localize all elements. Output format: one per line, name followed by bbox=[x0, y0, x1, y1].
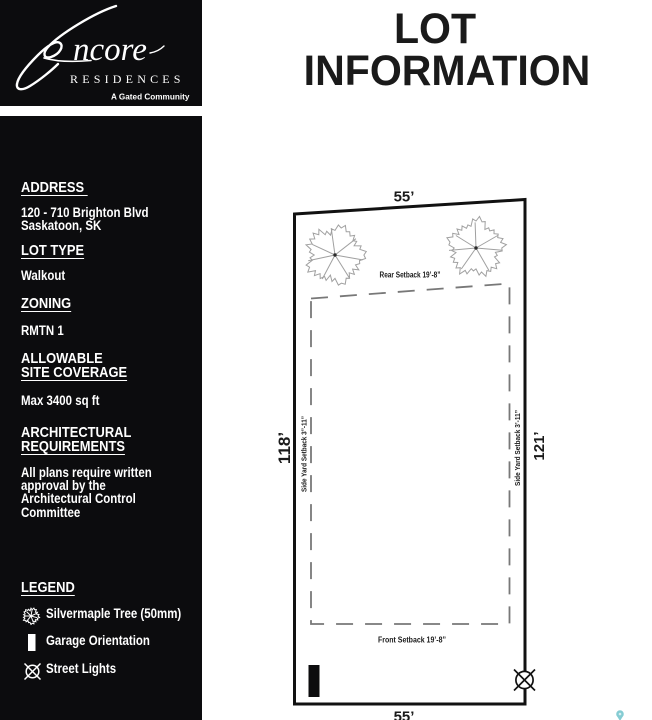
svg-text:Side Yard Setback 3’-11”: Side Yard Setback 3’-11” bbox=[513, 410, 522, 486]
svg-text:55’: 55’ bbox=[394, 709, 415, 720]
svg-text:118’: 118’ bbox=[275, 432, 294, 464]
svg-text:55’: 55’ bbox=[394, 189, 415, 206]
svg-text:Rear Setback 19’-8”: Rear Setback 19’-8” bbox=[380, 271, 441, 280]
svg-text:121’: 121’ bbox=[531, 431, 548, 460]
svg-text:Side Yard Setback 3”-11”: Side Yard Setback 3”-11” bbox=[300, 416, 309, 492]
svg-text:Front Setback 19’-8”: Front Setback 19’-8” bbox=[378, 636, 446, 645]
